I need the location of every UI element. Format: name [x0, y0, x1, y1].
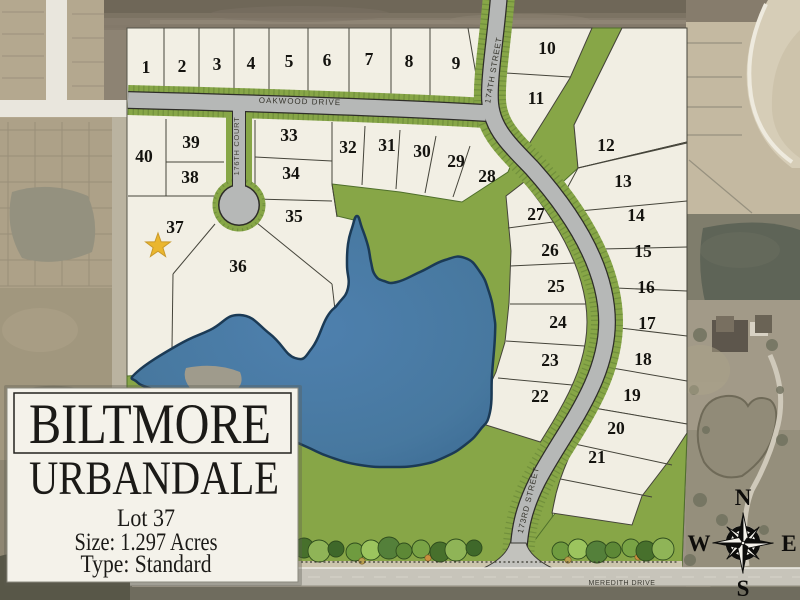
- svg-text:15: 15: [634, 241, 652, 261]
- svg-text:9: 9: [452, 53, 461, 73]
- svg-text:11: 11: [528, 88, 545, 108]
- svg-text:20: 20: [607, 418, 625, 438]
- svg-text:32: 32: [339, 137, 357, 157]
- svg-text:E: E: [781, 531, 796, 556]
- svg-text:18: 18: [634, 349, 652, 369]
- svg-text:30: 30: [413, 141, 431, 161]
- svg-text:28: 28: [478, 166, 496, 186]
- svg-text:24: 24: [549, 312, 567, 332]
- svg-text:8: 8: [405, 51, 414, 71]
- svg-text:16: 16: [637, 277, 655, 297]
- svg-text:12: 12: [597, 135, 615, 155]
- svg-text:URBANDALE: URBANDALE: [29, 452, 279, 505]
- svg-text:3: 3: [213, 54, 222, 74]
- svg-text:S: S: [737, 576, 750, 600]
- svg-text:22: 22: [531, 386, 549, 406]
- svg-text:2: 2: [178, 56, 187, 76]
- svg-text:26: 26: [541, 240, 559, 260]
- svg-text:10: 10: [538, 38, 556, 58]
- svg-text:1: 1: [142, 57, 151, 77]
- svg-text:4: 4: [247, 53, 256, 73]
- svg-text:21: 21: [588, 447, 606, 467]
- svg-text:23: 23: [541, 350, 559, 370]
- svg-text:27: 27: [527, 204, 545, 224]
- svg-text:40: 40: [135, 146, 153, 166]
- svg-text:14: 14: [627, 205, 645, 225]
- svg-text:6: 6: [323, 50, 332, 70]
- svg-text:Type: Standard: Type: Standard: [81, 551, 212, 578]
- svg-text:36: 36: [229, 256, 247, 276]
- svg-text:19: 19: [623, 385, 641, 405]
- svg-text:37: 37: [166, 217, 184, 237]
- svg-text:N: N: [735, 485, 752, 510]
- svg-text:39: 39: [182, 132, 200, 152]
- svg-text:BILTMORE: BILTMORE: [29, 393, 271, 456]
- svg-text:17: 17: [638, 313, 656, 333]
- svg-text:MEREDITH DRIVE: MEREDITH DRIVE: [589, 580, 656, 587]
- svg-text:33: 33: [280, 125, 298, 145]
- svg-text:38: 38: [181, 167, 199, 187]
- svg-text:7: 7: [365, 49, 374, 69]
- svg-text:31: 31: [378, 135, 396, 155]
- svg-text:Lot 37: Lot 37: [117, 505, 175, 532]
- svg-text:13: 13: [614, 171, 632, 191]
- svg-text:W: W: [688, 531, 711, 556]
- svg-text:34: 34: [282, 163, 300, 183]
- svg-text:35: 35: [285, 206, 303, 226]
- svg-text:176TH COURT: 176TH COURT: [232, 117, 241, 176]
- svg-text:25: 25: [547, 276, 565, 296]
- svg-text:29: 29: [447, 151, 465, 171]
- svg-text:5: 5: [285, 51, 294, 71]
